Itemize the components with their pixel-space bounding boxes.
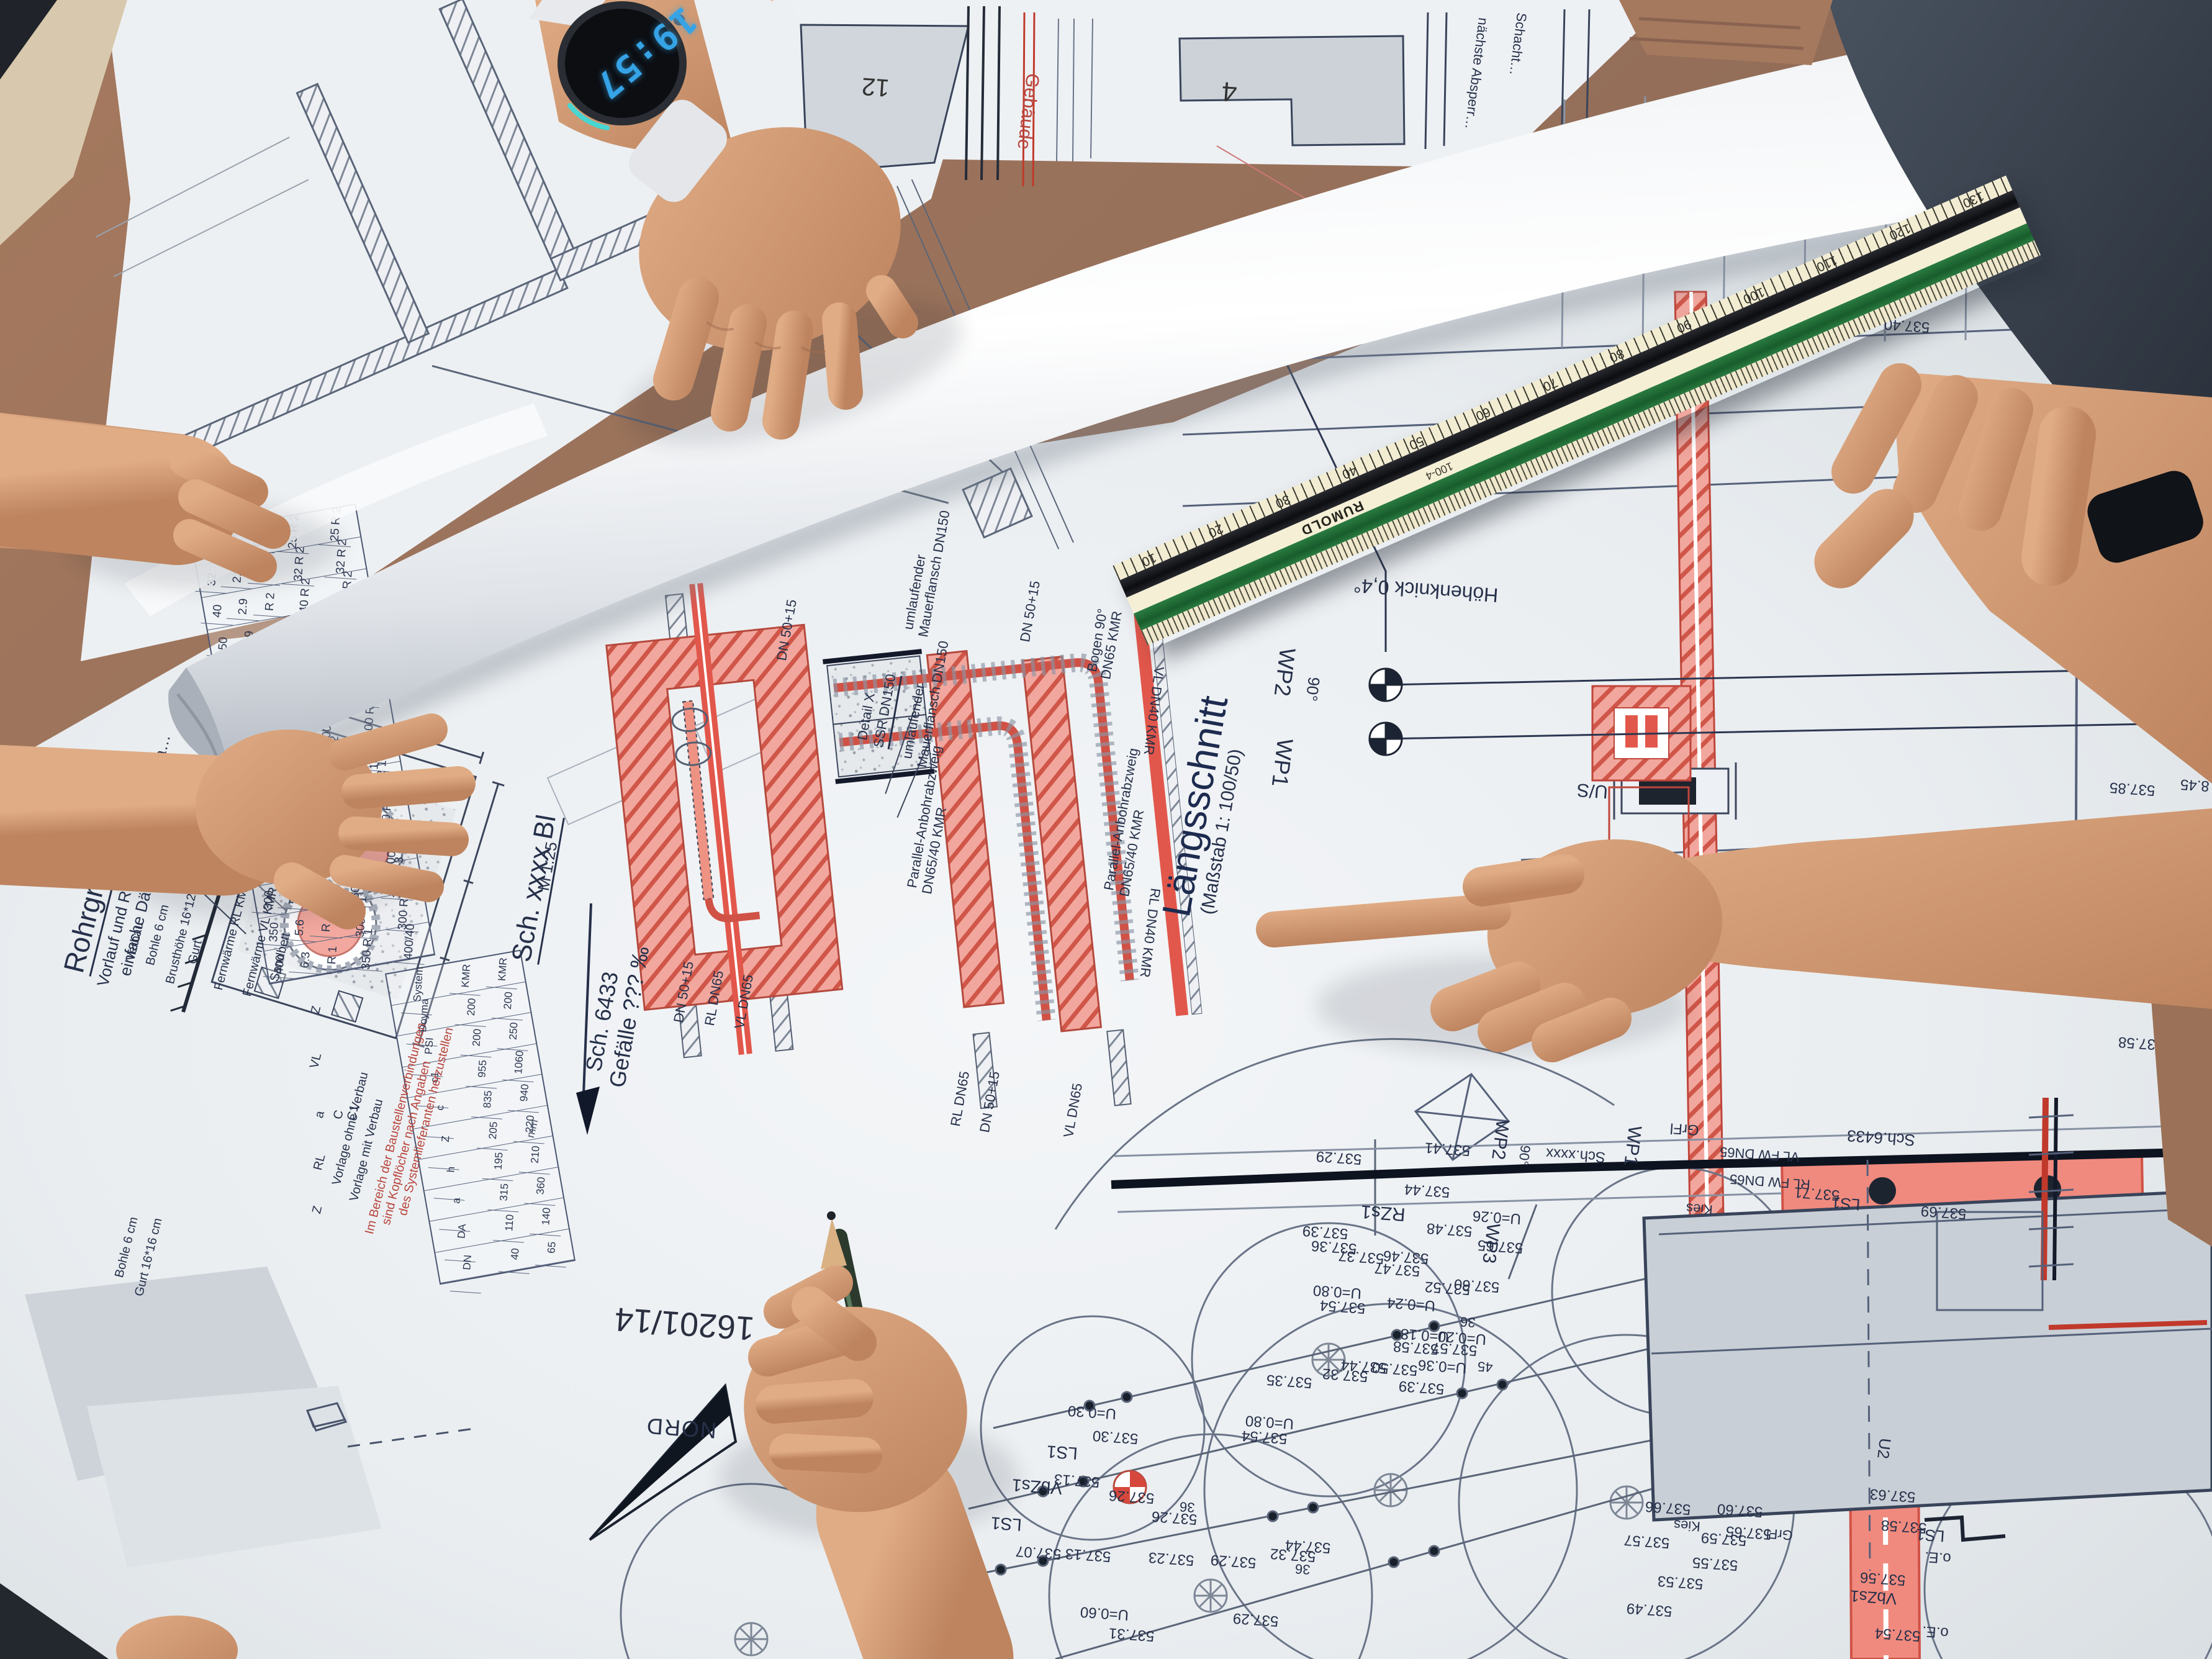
- left-hand-upper: [0, 410, 273, 566]
- writing-hand: [731, 1283, 980, 1659]
- hand-bottom-left: [116, 1616, 238, 1659]
- photo-scene: Rohrgrabenprofil Vorlauf und Rücklauf KM…: [0, 0, 2212, 1659]
- hands-overlay: [0, 0, 2212, 1659]
- left-hand-lower: [0, 730, 458, 911]
- hand-on-ruler: [1841, 371, 2212, 784]
